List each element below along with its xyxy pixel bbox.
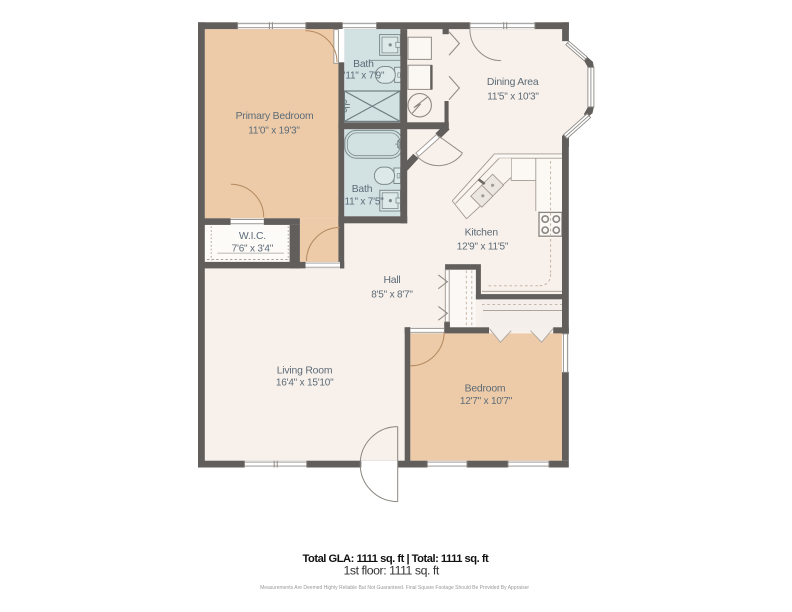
svg-text:Dining Area: Dining Area (487, 77, 539, 88)
svg-text:11'5" x 10'3": 11'5" x 10'3" (487, 92, 539, 103)
svg-text:Kitchen: Kitchen (465, 228, 499, 239)
svg-text:12'9" x 11'5": 12'9" x 11'5" (457, 242, 509, 253)
svg-text:'11" x 7'9": '11" x 7'9" (344, 71, 385, 82)
svg-text:1st floor: 1111 sq. ft: 1st floor: 1111 sq. ft (344, 563, 440, 577)
svg-text:12'7" x 10'7": 12'7" x 10'7" (460, 396, 513, 407)
svg-text:11'0" x 19'3": 11'0" x 19'3" (248, 126, 300, 137)
svg-text:8'5" x 8'7": 8'5" x 8'7" (371, 289, 413, 300)
svg-text:W.I.C.: W.I.C. (239, 231, 266, 242)
svg-text:Bedroom: Bedroom (465, 383, 506, 394)
svg-text:Bath: Bath (352, 184, 373, 195)
svg-text:Bath: Bath (353, 59, 374, 70)
svg-text:Hall: Hall (383, 275, 400, 286)
svg-text:'11" x 7'5": '11" x 7'5" (343, 197, 384, 208)
svg-text:16'4" x 15'10": 16'4" x 15'10" (276, 378, 334, 389)
svg-text:Living Room: Living Room (277, 366, 333, 377)
svg-text:7'6" x 3'4": 7'6" x 3'4" (232, 243, 274, 254)
svg-text:Measurements Are Deemed Highly: Measurements Are Deemed Highly Reliable … (260, 585, 529, 591)
svg-text:Primary Bedroom: Primary Bedroom (236, 111, 314, 122)
